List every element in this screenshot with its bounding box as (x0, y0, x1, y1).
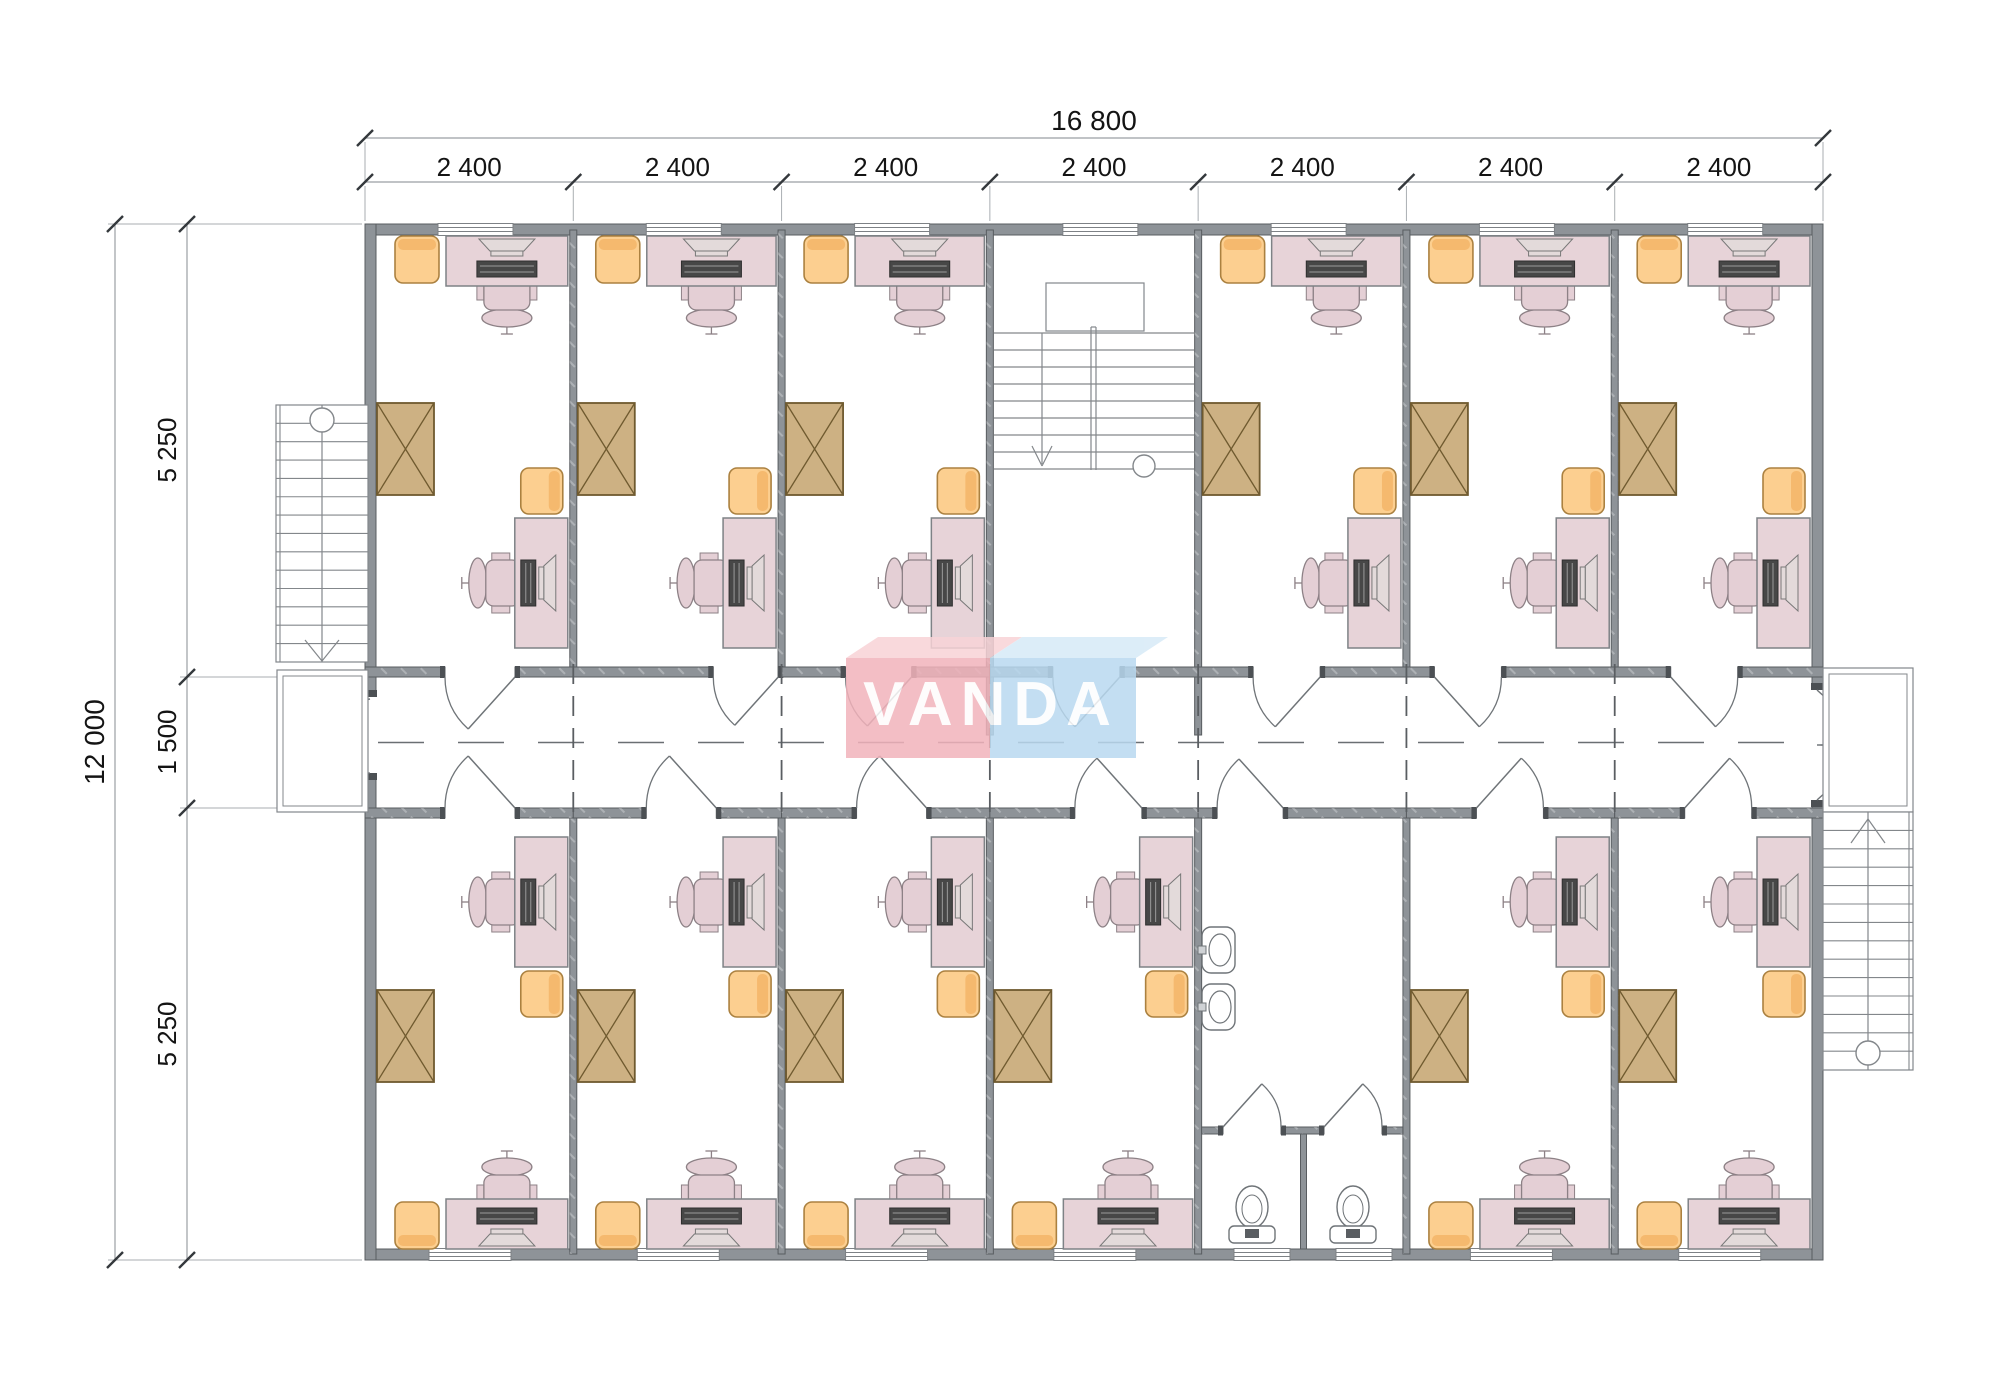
monitor-stand (1781, 886, 1786, 918)
office-chair-armrest (908, 606, 926, 613)
door-leaf (1671, 677, 1716, 727)
office-room-top-3 (786, 236, 984, 648)
office-chair-back (469, 877, 487, 927)
door-swing-arc (445, 677, 468, 729)
door-jamb (1501, 666, 1506, 678)
office-chair-back (677, 877, 695, 927)
door-swing-arc (1716, 677, 1738, 727)
door-swing-arc (646, 756, 669, 808)
keyboard (1306, 261, 1366, 277)
dimension-label-bay: 2 400 (1061, 152, 1126, 182)
corridor-wall-hatch (1738, 667, 1823, 677)
door-swing-arc (1521, 758, 1543, 808)
corridor-wall-hatch (990, 808, 1075, 818)
office-room-top-5 (1203, 236, 1401, 648)
office-chair-armrest (700, 925, 718, 932)
sink-tap (1198, 946, 1206, 954)
window (1479, 224, 1554, 236)
window (1336, 1249, 1392, 1261)
dimension-label-depth-bottom: 5 250 (152, 1001, 182, 1066)
bathroom (1198, 927, 1403, 1249)
corridor-wall-hatch (1142, 808, 1198, 818)
dimension-label-corridor: 1 500 (152, 709, 182, 774)
stair-arrow-down (1032, 446, 1042, 466)
door-jamb (440, 666, 445, 678)
monitor-stand (955, 567, 960, 599)
door-jamb (1319, 1126, 1324, 1136)
dimension-label-total-width: 16 800 (1051, 105, 1137, 136)
window (637, 1249, 719, 1261)
door-jamb (1811, 800, 1824, 807)
door-jamb (1382, 1126, 1387, 1136)
stair-landing (1046, 283, 1144, 331)
armchair-back (757, 974, 768, 1014)
office-chair-armrest (1325, 606, 1343, 613)
monitor-stand (1733, 1229, 1765, 1234)
partition-wall-hatch (1611, 808, 1618, 1254)
armchair-back (1640, 1235, 1678, 1246)
door-jamb (515, 666, 520, 678)
partition-wall-hatch (1195, 808, 1202, 1254)
window (1234, 1249, 1290, 1261)
stair-start-circle (310, 408, 334, 432)
window (429, 1249, 511, 1261)
office-chair-armrest (1117, 872, 1135, 879)
office-chair-armrest (1734, 872, 1752, 879)
office-chair-back (895, 309, 945, 327)
dimension-label-depth-top: 5 250 (152, 417, 182, 482)
door-jamb (1471, 807, 1476, 819)
window (1470, 1249, 1552, 1261)
armchair-back (1224, 239, 1262, 250)
toilet-flush (1346, 1229, 1360, 1238)
office-chair-armrest (1533, 553, 1551, 560)
keyboard (1146, 879, 1161, 925)
monitor-stand (1529, 251, 1561, 256)
armchair-back (1174, 974, 1185, 1014)
door-swing-arc (1075, 758, 1097, 808)
corridor-wall-hatch (573, 808, 646, 818)
door-jamb (852, 807, 857, 819)
door-leaf (735, 677, 778, 725)
armchair-back (807, 239, 845, 250)
office-chair-back (1510, 558, 1528, 608)
monitor-stand (491, 251, 523, 256)
office-chair-armrest (492, 553, 510, 560)
office-chair-armrest (1325, 553, 1343, 560)
office-chair-armrest (492, 925, 510, 932)
armchair-back (1640, 239, 1678, 250)
door-swing-arc (713, 677, 735, 725)
keyboard (1098, 1208, 1158, 1224)
door-jamb (1738, 666, 1743, 678)
keyboard (521, 879, 536, 925)
left-landing (277, 670, 368, 812)
monitor-stand (1580, 567, 1585, 599)
door-swing-arc (1217, 759, 1239, 808)
monitor-stand (1320, 251, 1352, 256)
door-jamb (1811, 683, 1824, 690)
dimension-label-total-height: 12 000 (79, 699, 110, 785)
keyboard (521, 560, 536, 606)
door-jamb (708, 666, 713, 678)
partition-wall-hatch (570, 230, 577, 677)
dimension-label-bay: 2 400 (437, 152, 502, 182)
dimension-label-bay: 2 400 (853, 152, 918, 182)
window (1271, 224, 1346, 236)
office-room-bottom-3 (786, 837, 984, 1249)
door-jamb (1218, 1126, 1223, 1136)
office-room-bottom-6 (1411, 837, 1609, 1249)
monitor-stand (539, 567, 544, 599)
corridor-wall-hatch (515, 808, 573, 818)
partition-wall-hatch (1195, 230, 1202, 677)
keyboard (1719, 1208, 1779, 1224)
stall-wall-hatch (1281, 1127, 1324, 1134)
monitor-stand (539, 886, 544, 918)
corridor-wall-hatch (365, 808, 445, 818)
office-chair-armrest (700, 606, 718, 613)
stair-start-circle (1856, 1041, 1880, 1065)
door-leaf (1275, 677, 1320, 727)
monitor-stand (1781, 567, 1786, 599)
armchair-back (1382, 471, 1393, 511)
keyboard (937, 560, 952, 606)
window (646, 224, 721, 236)
monitor-stand (491, 1229, 523, 1234)
door-jamb (1248, 666, 1253, 678)
corridor-wall-hatch (365, 667, 445, 677)
office-chair-armrest (1533, 606, 1551, 613)
window (1054, 1249, 1136, 1261)
armchair-back (1015, 1235, 1053, 1246)
corridor-wall-hatch (1615, 808, 1685, 818)
corridor-wall-hatch (1752, 808, 1823, 818)
office-chair-back (686, 1158, 736, 1176)
door-jamb (1429, 666, 1434, 678)
office-chair-back (1510, 877, 1528, 927)
partition-wall-hatch (986, 230, 993, 677)
office-chair-armrest (1533, 925, 1551, 932)
armchair-back (549, 471, 560, 511)
office-chair-back (482, 1158, 532, 1176)
door-jamb (515, 807, 520, 819)
window (855, 224, 930, 236)
office-chair-back (677, 558, 695, 608)
door-jamb (841, 666, 846, 678)
keyboard (1562, 560, 1577, 606)
window (1679, 1249, 1761, 1261)
dimension-label-bay: 2 400 (645, 152, 710, 182)
corridor-wall-hatch (1501, 667, 1614, 677)
stall-divider-wall (1301, 1134, 1307, 1249)
floor-plan-page: 16 8002 4002 4002 4002 4002 4002 4002 40… (0, 0, 2000, 1380)
corridor-wall-hatch (716, 808, 781, 818)
partition-wall-hatch (986, 808, 993, 1254)
dimension-label-bay: 2 400 (1270, 152, 1335, 182)
door-jamb (1666, 666, 1671, 678)
door-jamb (1281, 1126, 1286, 1136)
office-chair-armrest (908, 553, 926, 560)
monitor-stand (904, 251, 936, 256)
corridor-wall-hatch (1543, 808, 1614, 818)
toilet-bowl (1236, 1186, 1268, 1228)
office-chair-back (1094, 877, 1112, 927)
sink-tap (1198, 1003, 1206, 1011)
door-jamb (1680, 807, 1685, 819)
door-swing-arc (1730, 758, 1752, 808)
window (438, 224, 513, 236)
office-room-top-1 (377, 236, 568, 648)
door-jamb (1212, 807, 1217, 819)
monitor-stand (695, 1229, 727, 1234)
door-swing-arc (1262, 1084, 1281, 1127)
watermark-logo-text: VANDA (863, 670, 1119, 739)
monitor-stand (1164, 886, 1169, 918)
door-leaf (1223, 1084, 1262, 1127)
corridor-wall-hatch (1320, 667, 1406, 677)
door-swing-arc (1253, 677, 1275, 727)
armchair-back (965, 471, 976, 511)
keyboard (681, 1208, 741, 1224)
vanda-watermark: VANDA (846, 637, 1168, 758)
office-chair-armrest (1117, 925, 1135, 932)
office-chair-back (885, 877, 903, 927)
corridor-wall-hatch (1615, 667, 1671, 677)
office-chair-armrest (1734, 925, 1752, 932)
door-swing-arc (1479, 677, 1501, 727)
keyboard (1354, 560, 1369, 606)
keyboard (1515, 1208, 1575, 1224)
office-chair-armrest (492, 872, 510, 879)
door-jamb (1752, 807, 1757, 819)
office-chair-armrest (700, 872, 718, 879)
partition-wall-hatch (778, 230, 785, 677)
door-jamb (440, 807, 445, 819)
monitor-stand (1733, 251, 1765, 256)
door-leaf (1434, 677, 1479, 727)
door-leaf (1324, 1084, 1363, 1127)
keyboard (890, 261, 950, 277)
corridor-wall-hatch (927, 808, 990, 818)
office-chair-back (1311, 309, 1361, 327)
office-chair-back (895, 1158, 945, 1176)
keyboard (1763, 560, 1778, 606)
office-room-bottom-2 (578, 837, 776, 1249)
office-room-bottom-1 (377, 837, 568, 1249)
armchair-back (599, 1235, 637, 1246)
armchair-back (1791, 974, 1802, 1014)
monitor-stand (695, 251, 727, 256)
armchair-back (807, 1235, 845, 1246)
office-room-top-6 (1411, 236, 1609, 648)
office-chair-back (1724, 1158, 1774, 1176)
armchair-back (398, 239, 436, 250)
office-chair-back (1520, 1158, 1570, 1176)
keyboard (477, 1208, 537, 1224)
office-chair-armrest (1533, 872, 1551, 879)
keyboard (1515, 261, 1575, 277)
partition-wall-hatch (1403, 230, 1410, 677)
keyboard (729, 560, 744, 606)
corridor-wall-hatch (1283, 808, 1406, 818)
office-chair-back (482, 309, 532, 327)
door-swing-arc (857, 756, 880, 808)
armchair-back (549, 974, 560, 1014)
office-room-bottom-4 (994, 837, 1192, 1249)
floor-plan-drawing: 16 8002 4002 4002 4002 4002 4002 4002 40… (0, 0, 2000, 1380)
door-jamb (1142, 807, 1147, 819)
armchair-back (599, 239, 637, 250)
keyboard (477, 261, 537, 277)
door-leaf (880, 756, 927, 808)
keyboard (681, 261, 741, 277)
door-swing-arc (445, 756, 468, 808)
dimension-label-bay: 2 400 (1478, 152, 1543, 182)
monitor-stand (747, 886, 752, 918)
door-leaf (468, 756, 515, 808)
door-jamb (641, 807, 646, 819)
keyboard (1562, 879, 1577, 925)
dimension-label-bay: 2 400 (1686, 152, 1751, 182)
monitor-stand (1529, 1229, 1561, 1234)
window (846, 1249, 928, 1261)
door-jamb (1543, 807, 1548, 819)
stair-arrow-down (1042, 446, 1052, 466)
partition-wall-hatch (1611, 230, 1618, 677)
monitor-stand (955, 886, 960, 918)
door-jamb (1283, 807, 1288, 819)
monitor-stand (1580, 886, 1585, 918)
door-leaf (468, 677, 515, 729)
keyboard (1719, 261, 1779, 277)
office-room-bottom-7 (1619, 837, 1810, 1249)
door-jamb (1320, 666, 1325, 678)
door-leaf (1476, 758, 1521, 808)
office-chair-back (686, 309, 736, 327)
corridor-wall-hatch (782, 808, 857, 818)
keyboard (890, 1208, 950, 1224)
office-chair-back (1711, 558, 1729, 608)
door-leaf (1685, 758, 1730, 808)
monitor-stand (904, 1229, 936, 1234)
door-swing-arc (1363, 1084, 1382, 1127)
corridor-wall-hatch (573, 667, 713, 677)
door-leaf (669, 756, 716, 808)
door-jamb (927, 807, 932, 819)
armchair-back (1590, 471, 1601, 511)
office-room-top-2 (578, 236, 776, 648)
central-stairwell (994, 283, 1194, 477)
keyboard (729, 879, 744, 925)
armchair-back (965, 974, 976, 1014)
partition-wall-hatch (1403, 808, 1410, 1254)
door-leaf (1239, 759, 1283, 808)
window (1688, 224, 1763, 236)
partition-wall-hatch (778, 808, 785, 1254)
door-jamb (716, 807, 721, 819)
toilet-bowl (1337, 1186, 1369, 1228)
office-chair-back (885, 558, 903, 608)
corridor-wall-hatch (1406, 808, 1476, 818)
monitor-stand (747, 567, 752, 599)
window (1063, 224, 1138, 236)
door-leaf (1097, 758, 1142, 808)
armchair-back (398, 1235, 436, 1246)
office-chair-armrest (908, 925, 926, 932)
office-chair-armrest (700, 553, 718, 560)
office-chair-armrest (1734, 606, 1752, 613)
armchair-back (1432, 239, 1470, 250)
office-chair-back (1103, 1158, 1153, 1176)
office-chair-armrest (908, 872, 926, 879)
office-chair-back (1520, 309, 1570, 327)
right-landing (1823, 668, 1913, 812)
armchair-back (1432, 1235, 1470, 1246)
office-chair-back (1724, 309, 1774, 327)
office-chair-armrest (492, 606, 510, 613)
office-room-top-7 (1619, 236, 1810, 648)
stair-start-circle (1133, 455, 1155, 477)
monitor-stand (1112, 1229, 1144, 1234)
office-chair-back (1302, 558, 1320, 608)
corridor-wall-hatch (1198, 667, 1253, 677)
partition-wall-hatch (570, 808, 577, 1254)
keyboard (1763, 879, 1778, 925)
monitor-stand (1372, 567, 1377, 599)
door-jamb (1070, 807, 1075, 819)
corridor-wall-hatch (515, 667, 573, 677)
sink-basin (1209, 934, 1231, 966)
office-chair-armrest (1734, 553, 1752, 560)
corridor-wall-hatch (782, 667, 846, 677)
armchair-back (1791, 471, 1802, 511)
armchair-back (757, 471, 768, 511)
office-chair-back (1711, 877, 1729, 927)
armchair-back (1590, 974, 1601, 1014)
sink-basin (1209, 991, 1231, 1023)
keyboard (937, 879, 952, 925)
toilet-flush (1245, 1229, 1259, 1238)
office-chair-back (469, 558, 487, 608)
